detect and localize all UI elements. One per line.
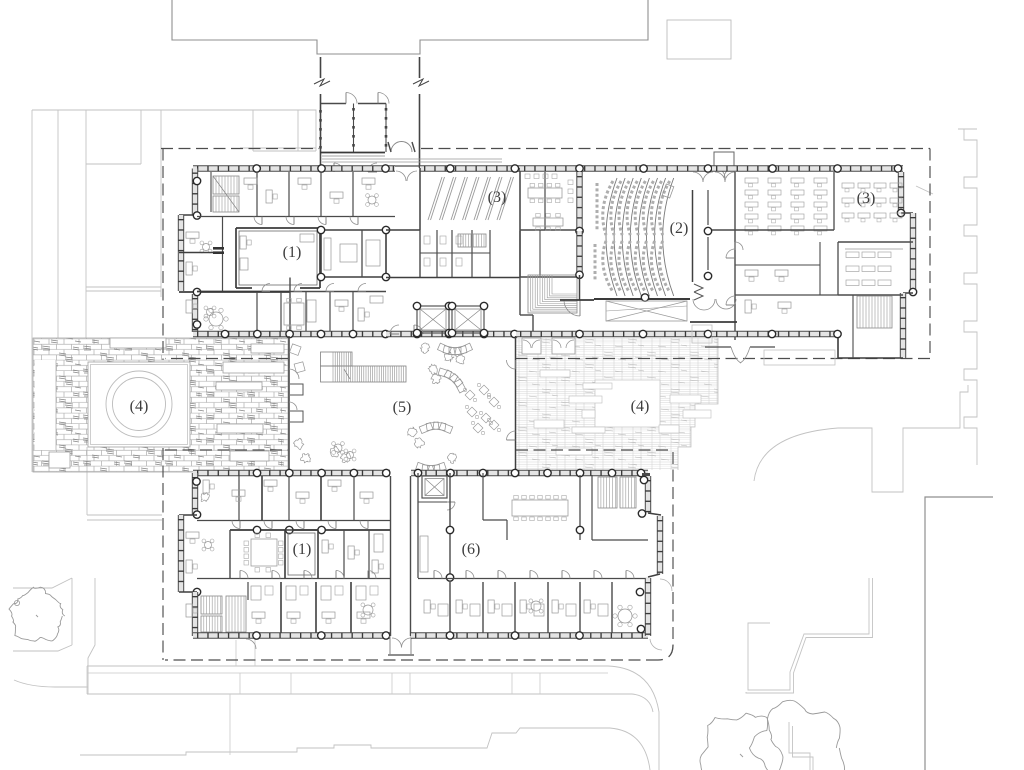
svg-text:(5): (5) [393, 399, 412, 416]
svg-text:(1): (1) [293, 541, 312, 558]
svg-text:(3): (3) [857, 190, 876, 207]
svg-text:(4): (4) [130, 398, 149, 415]
svg-text:(2): (2) [670, 220, 689, 237]
svg-text:(1): (1) [283, 244, 302, 261]
svg-text:(4): (4) [631, 398, 650, 415]
svg-text:(3): (3) [488, 189, 507, 206]
svg-text:(6): (6) [462, 541, 481, 558]
